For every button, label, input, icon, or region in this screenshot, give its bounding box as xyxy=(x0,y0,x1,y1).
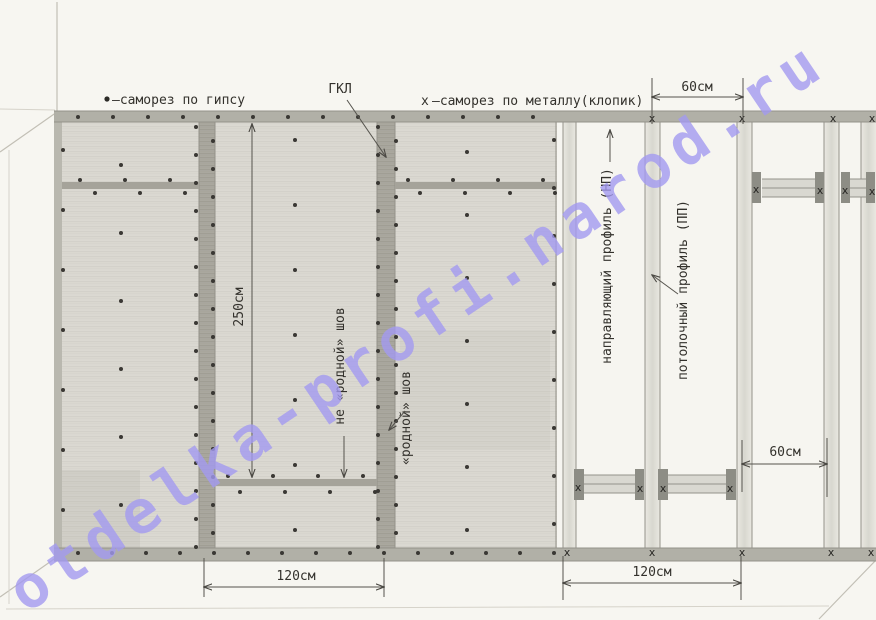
horizontal-seam-left-sheet xyxy=(57,182,199,189)
gypsum-screw-dot xyxy=(93,191,97,195)
metal-screw-x-mark: х xyxy=(842,184,849,197)
gypsum-screw-dot xyxy=(181,115,185,119)
gypsum-screw-dot xyxy=(61,208,65,212)
gypsum-screw-dot xyxy=(293,463,297,467)
gypsum-screw-dot xyxy=(212,551,216,555)
metal-screw-x-mark: х xyxy=(753,183,760,196)
gypsum-screw-dot xyxy=(461,115,465,119)
metal-screw-x-mark: х xyxy=(869,185,876,198)
metal-screw-x-icon: х xyxy=(421,94,429,109)
gypsum-screw-dot xyxy=(111,115,115,119)
gypsum-screw-dot xyxy=(194,293,198,297)
gypsum-screw-dot xyxy=(518,551,522,555)
gypsum-screw-dot xyxy=(394,167,398,171)
gypsum-screw-dot xyxy=(293,203,297,207)
seam-factory-label: «родной» шов xyxy=(399,371,414,465)
metal-screw-x-mark: х xyxy=(564,546,571,559)
gypsum-screw-dot xyxy=(119,299,123,303)
metal-screw-x-mark: х xyxy=(828,546,835,559)
gypsum-screw-dot xyxy=(531,115,535,119)
gypsum-screw-dot xyxy=(406,178,410,182)
gypsum-screw-dot xyxy=(211,195,215,199)
gypsum-screw-dot xyxy=(394,503,398,507)
bottom-rail xyxy=(54,548,876,561)
gypsum-screw-dot xyxy=(316,474,320,478)
gypsum-screw-dot xyxy=(394,195,398,199)
gypsum-screw-dot xyxy=(394,139,398,143)
gypsum-screw-dot xyxy=(61,328,65,332)
gypsum-screw-dot xyxy=(211,307,215,311)
gypsum-screw-dot xyxy=(194,545,198,549)
gypsum-screw-dot xyxy=(211,335,215,339)
gypsum-screw-dot xyxy=(552,138,556,142)
gypsum-screw-dot xyxy=(194,405,198,409)
gypsum-screw-dot xyxy=(251,115,255,119)
gypsum-screw-dot xyxy=(463,191,467,195)
gypsum-screw-dot xyxy=(194,349,198,353)
gypsum-screw-dot xyxy=(496,178,500,182)
legend-metal-screw: х —саморез по металлу(клопик) xyxy=(421,94,643,109)
gypsum-screw-dot xyxy=(552,522,556,526)
gypsum-screw-dot xyxy=(194,377,198,381)
metal-screw-x-mark: х xyxy=(739,546,746,559)
gypsum-screw-dot xyxy=(211,139,215,143)
gypsum-screw-dot xyxy=(194,125,198,129)
gypsum-screw-dot xyxy=(138,191,142,195)
gypsum-screw-dot xyxy=(394,475,398,479)
gypsum-screw-dot xyxy=(119,435,123,439)
metal-screw-x-mark: х xyxy=(727,482,734,495)
metal-screw-x-mark: х xyxy=(637,482,644,495)
gypsum-screw-dot xyxy=(376,125,380,129)
gypsum-screw-dot xyxy=(465,528,469,532)
gypsum-screw-dot xyxy=(216,115,220,119)
gypsum-screw-dot xyxy=(552,426,556,430)
gypsum-screw-dot xyxy=(211,223,215,227)
gypsum-screw-dot-icon xyxy=(104,96,109,101)
gypsum-screw-dot xyxy=(484,551,488,555)
gypsum-screw-dot xyxy=(394,447,398,451)
gypsum-screw-dot xyxy=(293,528,297,532)
gypsum-screw-dot xyxy=(146,115,150,119)
gypsum-screw-dot xyxy=(552,282,556,286)
gypsum-screw-dot xyxy=(61,388,65,392)
gypsum-screw-dot xyxy=(61,148,65,152)
gypsum-screw-dot xyxy=(119,367,123,371)
gypsum-screw-dot xyxy=(286,115,290,119)
gypsum-screw-dot xyxy=(394,531,398,535)
gypsum-screw-dot xyxy=(194,237,198,241)
gypsum-screw-dot xyxy=(376,237,380,241)
gypsum-screw-dot xyxy=(194,209,198,213)
dim-250-label: 250см xyxy=(232,287,247,326)
metal-screw-x-mark: х xyxy=(649,546,656,559)
gypsum-screw-dot xyxy=(283,490,287,494)
gypsum-screw-dot xyxy=(552,378,556,382)
gypsum-screw-dot xyxy=(465,402,469,406)
gypsum-screw-dot xyxy=(376,181,380,185)
gypsum-screw-dot xyxy=(194,265,198,269)
legend-metal-label: —саморез по металлу(клопик) xyxy=(432,94,643,109)
gypsum-screw-dot xyxy=(376,461,380,465)
horizontal-seam-right-sheet xyxy=(395,182,557,189)
gypsum-screw-dot xyxy=(119,231,123,235)
gypsum-screw-dot xyxy=(293,268,297,272)
gypsum-screw-dot xyxy=(465,150,469,154)
gypsum-screw-dot xyxy=(376,545,380,549)
gypsum-screw-dot xyxy=(211,531,215,535)
legend-gypsum-label: —саморез по гипсу xyxy=(112,93,245,108)
gypsum-screw-dot xyxy=(394,391,398,395)
gypsum-screw-dot xyxy=(183,191,187,195)
gypsum-screw-dot xyxy=(194,181,198,185)
gypsum-screw-dot xyxy=(61,508,65,512)
gypsum-screw-dot xyxy=(348,551,352,555)
metal-screw-x-mark: х xyxy=(575,481,582,494)
gypsum-screw-dot xyxy=(211,167,215,171)
gypsum-screw-dot xyxy=(238,490,242,494)
gypsum-screw-dot xyxy=(394,251,398,255)
gypsum-screw-dot xyxy=(394,223,398,227)
wall-left-edge xyxy=(54,111,62,561)
gypsum-screw-dot xyxy=(194,321,198,325)
gypsum-screw-dot xyxy=(391,115,395,119)
gypsum-screw-dot xyxy=(418,191,422,195)
gypsum-screw-dot xyxy=(119,163,123,167)
gypsum-screw-dot xyxy=(465,339,469,343)
gypsum-screw-dot xyxy=(552,551,556,555)
gypsum-screw-dot xyxy=(76,115,80,119)
gkl-label: ГКЛ xyxy=(328,82,351,97)
metal-screw-x-mark: х xyxy=(817,184,824,197)
metal-screw-x-mark: х xyxy=(830,112,837,125)
ceiling-profile-label: потолочный профиль (ПП) xyxy=(676,200,691,380)
gypsum-screw-dot xyxy=(328,490,332,494)
gypsum-screw-dot xyxy=(211,363,215,367)
gypsum-screw-dot xyxy=(376,293,380,297)
gypsum-screw-dot xyxy=(376,153,380,157)
gypsum-screw-dot xyxy=(78,178,82,182)
gypsum-screw-dot xyxy=(280,551,284,555)
gypsum-screw-dot xyxy=(211,279,215,283)
metal-screw-x-mark: х xyxy=(869,112,876,125)
gypsum-screw-dot xyxy=(321,115,325,119)
gypsum-screw-dot xyxy=(496,115,500,119)
gypsum-screw-dot xyxy=(61,268,65,272)
gypsum-screw-dot xyxy=(61,448,65,452)
gypsum-screw-dot xyxy=(382,551,386,555)
gypsum-screw-dot xyxy=(376,265,380,269)
gypsum-screw-dot xyxy=(426,115,430,119)
gypsum-screw-dot xyxy=(394,279,398,283)
gypsum-screw-dot xyxy=(376,209,380,213)
gypsum-screw-dot xyxy=(552,474,556,478)
gypsum-screw-dot xyxy=(451,178,455,182)
drywall-wall-diagram: ххххххххххххххххх 60см 60см 250см 120см xyxy=(0,0,876,620)
gypsum-screw-dot xyxy=(314,551,318,555)
gypsum-screw-dot xyxy=(465,465,469,469)
gypsum-screw-dot xyxy=(376,517,380,521)
gypsum-screw-dot xyxy=(416,551,420,555)
gypsum-screw-dot xyxy=(376,433,380,437)
gypsum-screw-dot xyxy=(450,551,454,555)
dim-sheet-width-label: 120см xyxy=(276,569,315,584)
gypsum-screw-dot xyxy=(361,474,365,478)
legend-gypsum-screw: —саморез по гипсу xyxy=(104,93,245,108)
gypsum-screw-dot xyxy=(293,138,297,142)
gypsum-screw-dot xyxy=(552,330,556,334)
gypsum-screw-dot xyxy=(194,153,198,157)
gypsum-screw-dot xyxy=(211,251,215,255)
dim-mid-60-label: 60см xyxy=(769,445,800,460)
gypsum-screw-dot xyxy=(168,178,172,182)
dim-frame-spacing-label: 120см xyxy=(632,565,671,580)
gypsum-screw-dot xyxy=(541,178,545,182)
gypsum-screw-dot xyxy=(178,551,182,555)
gypsum-screw-dot xyxy=(373,490,377,494)
gypsum-screw-dot xyxy=(465,213,469,217)
gypsum-screw-dot xyxy=(508,191,512,195)
gypsum-screw-dot xyxy=(376,405,380,409)
gypsum-screw-dot xyxy=(123,178,127,182)
metal-screw-x-mark: х xyxy=(660,482,667,495)
metal-screw-x-mark: х xyxy=(868,546,875,559)
scanned-drawing-page: ххххххххххххххххх 60см 60см 250см 120см xyxy=(0,0,876,620)
gypsum-screw-dot xyxy=(246,551,250,555)
ceiling-profile-2 xyxy=(737,122,752,548)
gypsum-screw-dot xyxy=(271,474,275,478)
gypsum-screw-dot xyxy=(211,391,215,395)
ceiling-profile-3 xyxy=(824,122,839,548)
gypsum-screw-dot xyxy=(293,333,297,337)
